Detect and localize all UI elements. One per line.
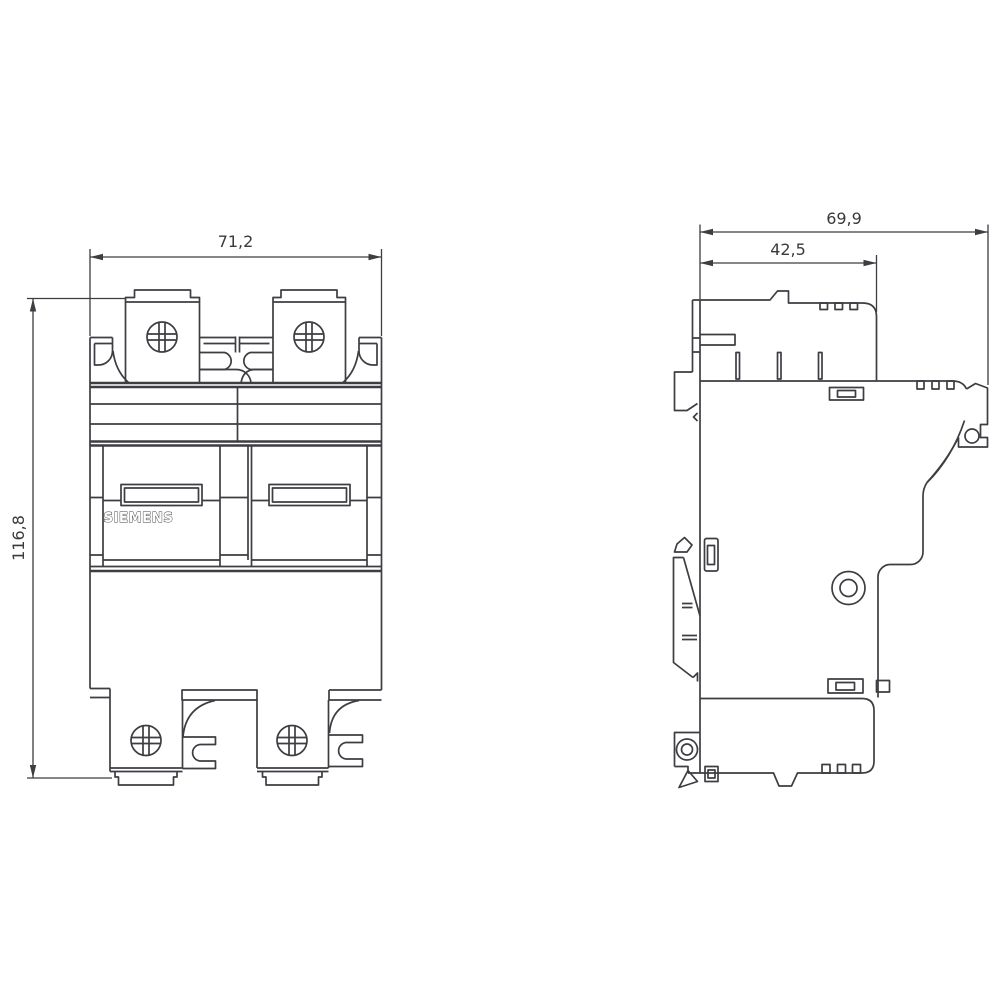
screw-head-icon: [131, 726, 161, 756]
dimension-front-width: 71,2: [90, 232, 382, 336]
dimension-front-height: 116,8: [9, 299, 126, 779]
screw-head-icon: [294, 322, 324, 352]
brand-label: SIEMENS: [104, 510, 174, 526]
dim-width-label: 71,2: [218, 232, 254, 251]
fuse-module-section: SIEMENS: [90, 446, 382, 572]
front-view: SIEMENS: [90, 290, 382, 785]
din-clip-rivet: [675, 733, 701, 767]
dimension-depth-total: 69,9: [700, 209, 988, 385]
front-bottom-terminal-1: [110, 698, 216, 786]
product-dimension-drawing: SIEMENS: [0, 0, 1000, 1000]
dim-depth-body-label: 42,5: [770, 240, 806, 259]
side-view: [674, 291, 988, 788]
screw-head-icon: [147, 322, 177, 352]
front-top-terminal-2: [273, 290, 346, 383]
dim-depth-total-label: 69,9: [826, 209, 862, 228]
screw-head-icon: [277, 726, 307, 756]
dim-height-label: 116,8: [9, 515, 28, 561]
front-bottom-terminal-2: [257, 700, 363, 785]
front-top-terminal-1: [126, 290, 200, 383]
din-rail-claw: [674, 538, 719, 788]
clip-hole-icon: [965, 429, 979, 443]
drawing-svg: SIEMENS: [0, 0, 1000, 1000]
din-release-clip: [878, 384, 988, 698]
boss-circle-icon: [832, 572, 865, 605]
